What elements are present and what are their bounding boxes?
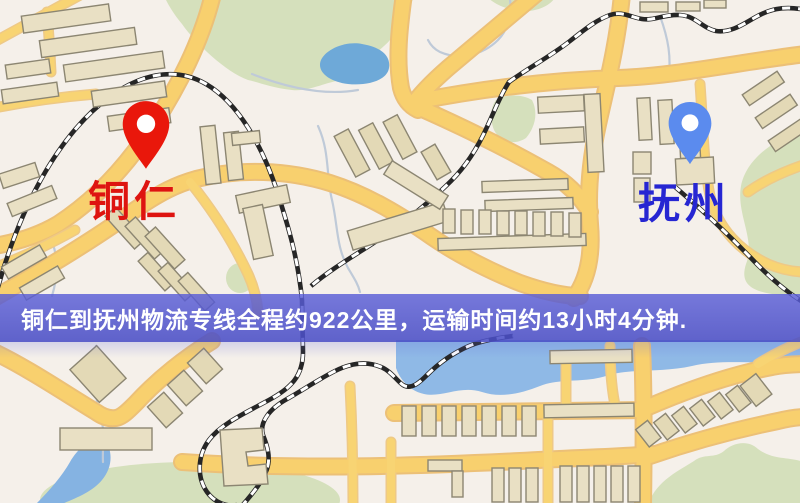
route-info-banner: 铜仁到抚州物流专线全程约922公里，运输时间约13小时4分钟. — [0, 294, 800, 342]
map-image: 铜仁 抚州 铜仁到抚州物流专线全程约922公里，运输时间约13小时4分钟. — [0, 0, 800, 503]
origin-pin-icon — [119, 99, 173, 173]
map-canvas — [0, 0, 800, 503]
destination-pin-icon — [664, 100, 716, 168]
origin-city-label: 铜仁 — [88, 181, 180, 223]
route-info-text: 铜仁到抚州物流专线全程约922公里，运输时间约13小时4分钟. — [21, 301, 687, 335]
destination-city-label: 抚州 — [638, 183, 730, 225]
